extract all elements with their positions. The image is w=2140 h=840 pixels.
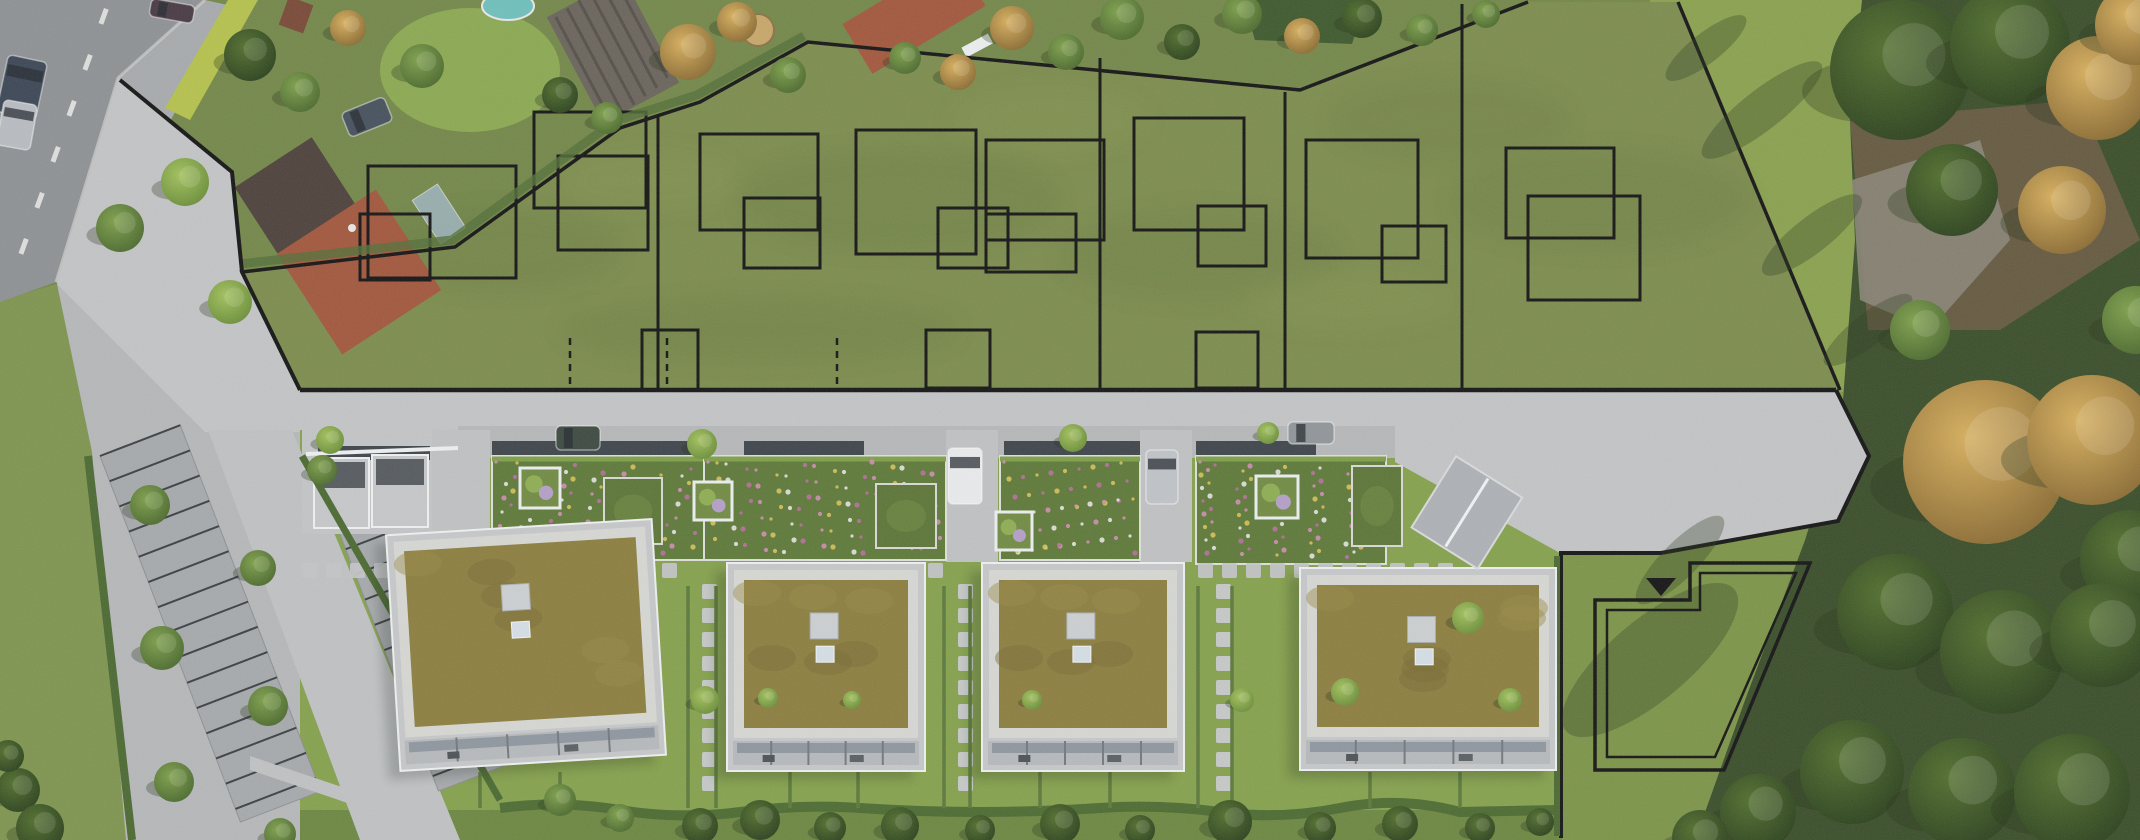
aerial-site-plan-photo (0, 0, 2140, 840)
scene-canvas (0, 0, 2140, 840)
photo-grain-overlay (0, 0, 2140, 840)
